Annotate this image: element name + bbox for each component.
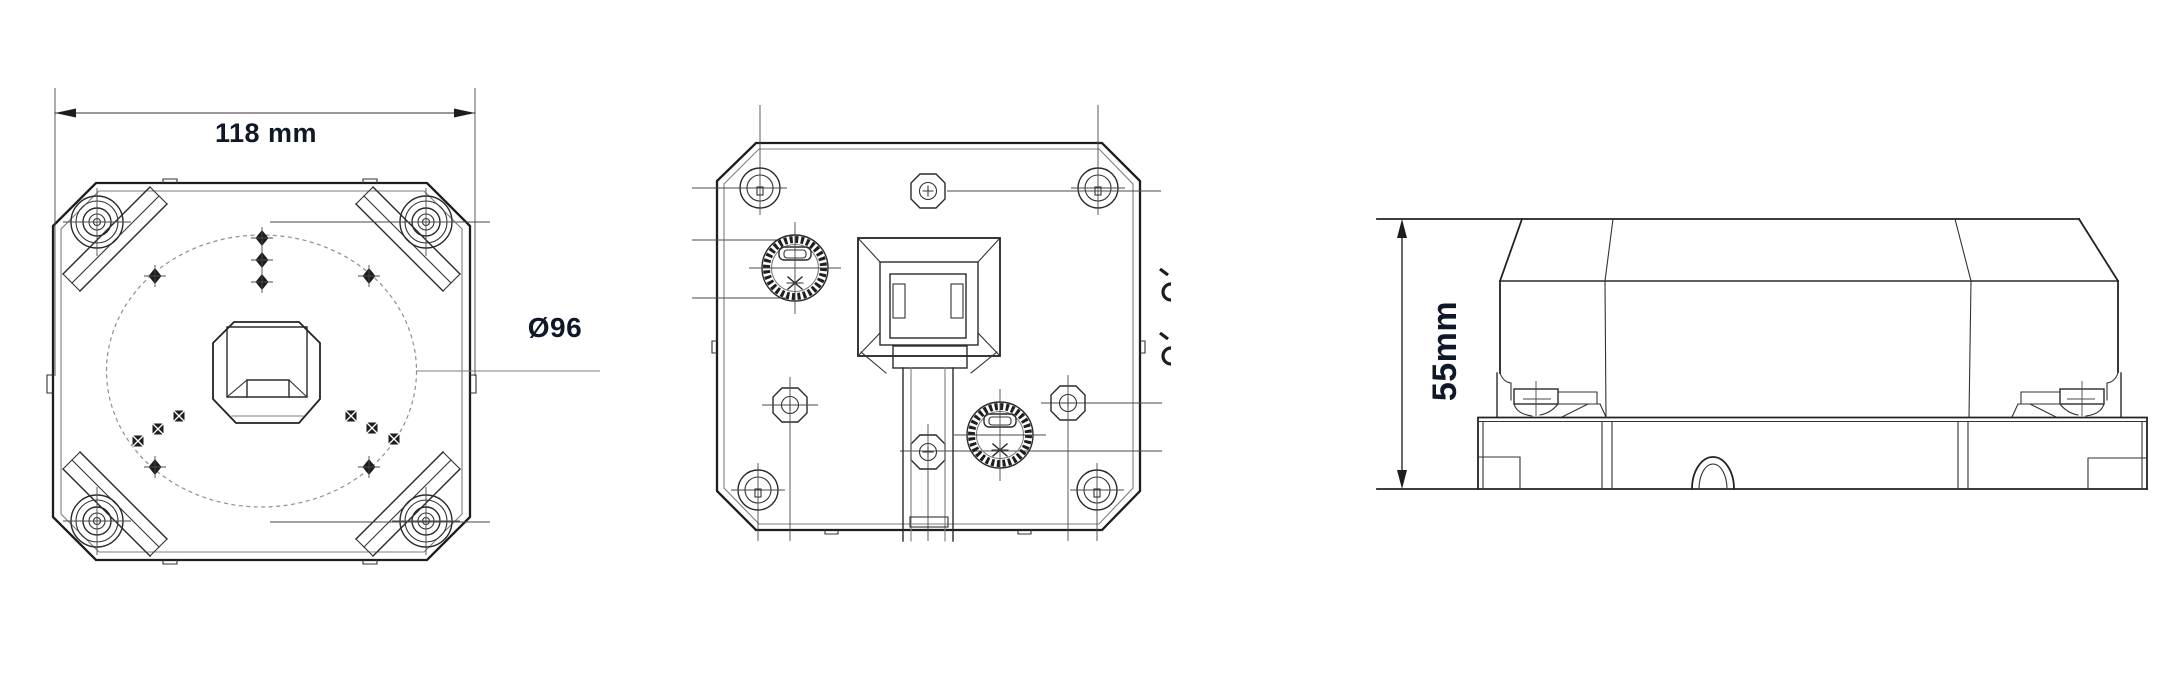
clipped-text-fragment bbox=[1160, 269, 1171, 364]
dome-body bbox=[1500, 219, 2118, 417]
width-dimension-label: 118 mm bbox=[215, 118, 317, 148]
center-mount-socket bbox=[213, 322, 320, 423]
corner-screw-icon bbox=[733, 161, 787, 215]
arrow-up-icon bbox=[1397, 219, 1407, 238]
front-view-drawing: 118 mm Ø96 bbox=[47, 88, 600, 564]
cable-notch-arch bbox=[1692, 457, 1734, 489]
diameter-label: Ø96 bbox=[528, 312, 582, 343]
arrow-right-icon bbox=[454, 109, 475, 118]
height-dimension-label: 55mm bbox=[1426, 301, 1464, 401]
height-dimension: 55mm bbox=[1397, 219, 1464, 489]
mounting-clip bbox=[1497, 373, 1606, 417]
arrow-down-icon bbox=[1397, 470, 1407, 489]
octagon-screw-icon bbox=[911, 174, 945, 208]
rear-body-outline bbox=[717, 143, 1140, 530]
rear-view-drawing bbox=[692, 105, 1171, 541]
position-marker bbox=[251, 227, 273, 249]
connector-socket bbox=[858, 238, 1000, 373]
mounting-clip bbox=[2012, 373, 2121, 417]
arrow-left-icon bbox=[55, 109, 76, 118]
width-dimension: 118 mm bbox=[55, 88, 475, 376]
corner-screw-icon bbox=[63, 188, 131, 256]
cable-gland-icon bbox=[954, 389, 1046, 481]
technical-drawing-page: 118 mm Ø96 bbox=[0, 0, 2183, 700]
side-view-drawing: 55mm bbox=[1377, 219, 2147, 489]
cable-gland-icon bbox=[749, 222, 841, 314]
base-plate bbox=[1478, 418, 2147, 490]
fiducial-marker bbox=[133, 436, 144, 447]
technical-drawing-canvas: 118 mm Ø96 bbox=[0, 0, 2183, 700]
